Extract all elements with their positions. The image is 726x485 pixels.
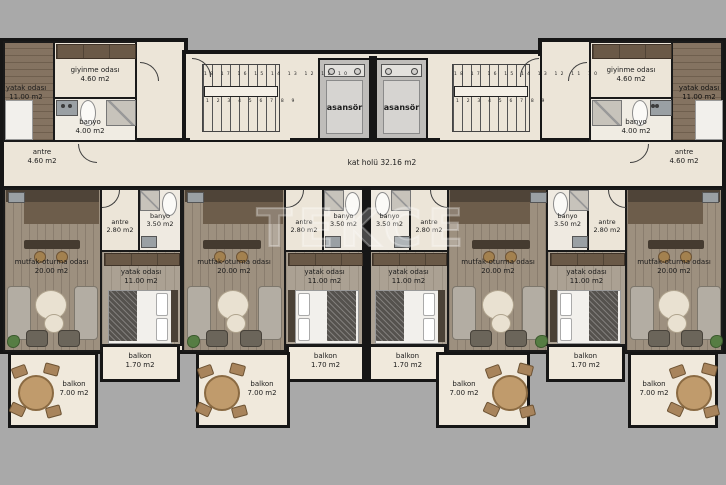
- pillow: [423, 293, 435, 316]
- top-right-entry-label: antre 4.60 m2: [648, 148, 720, 166]
- unit2-balcony-large-label: balkon 7.00 m2: [240, 380, 284, 398]
- pillow: [560, 293, 572, 316]
- bed: [5, 100, 33, 140]
- pillow: [156, 293, 168, 316]
- bathroom-sink: [141, 236, 157, 248]
- kitchen-cabinets: [450, 202, 530, 224]
- bed-headboard: [171, 290, 178, 342]
- bathroom-sink: [650, 100, 672, 116]
- kitchen-sink: [530, 192, 547, 203]
- bed-blanket: [589, 291, 618, 341]
- shower: [569, 190, 589, 211]
- wardrobe: [372, 253, 447, 266]
- shower: [324, 190, 344, 211]
- unit4-living-label: mutfak-oturma odası 20.00 m2: [627, 258, 721, 276]
- floor-plan: yatak odası 11.00 m2 giyinme odası 4.60 …: [0, 0, 726, 485]
- balcony-chair: [519, 404, 536, 419]
- bathroom-sink: [572, 236, 588, 248]
- kitchen-cabinets: [628, 202, 703, 224]
- unit2-balcony-small-label: balkon 1.70 m2: [288, 352, 363, 370]
- armchair: [648, 330, 670, 347]
- unit3-balcony-large-label: balkon 7.00 m2: [442, 380, 486, 398]
- unit1-living-label: mutfak-oturma odası 20.00 m2: [4, 258, 99, 276]
- unit1-balcony-large-label: balkon 7.00 m2: [52, 380, 96, 398]
- unit4-bath-label: banyo 3.50 m2: [546, 212, 589, 229]
- unit4-balcony-large-label: balkon 7.00 m2: [632, 380, 676, 398]
- wardrobe: [56, 44, 136, 59]
- bed-headboard: [550, 290, 557, 342]
- unit3-living-label: mutfak-oturma odası 20.00 m2: [449, 258, 547, 276]
- bed-headboard: [438, 290, 445, 342]
- elevator-divider-wall: [369, 56, 377, 142]
- top-left-bath-label: banyo 4.00 m2: [53, 118, 127, 136]
- top-right-bedroom-label: yatak odası 11.00 m2: [673, 84, 725, 102]
- kitchen-island: [472, 240, 530, 249]
- kitchen-island: [24, 240, 80, 249]
- shower: [140, 190, 160, 211]
- hall-label: kat holü 32.16 m2: [322, 158, 442, 168]
- bed-blanket: [109, 291, 137, 341]
- top-right-dressing-label: giyinme odası 4.60 m2: [589, 66, 673, 84]
- kitchen-island: [648, 240, 704, 249]
- top-left-entry-label: antre 4.60 m2: [6, 148, 78, 166]
- stair-handrail: [454, 86, 528, 97]
- unit3-balcony-small-label: balkon 1.70 m2: [370, 352, 445, 370]
- shower: [391, 190, 411, 211]
- unit2-entry-label: antre 2.80 m2: [284, 218, 324, 235]
- armchair: [26, 330, 48, 347]
- top-right-bath-label: banyo 4.00 m2: [599, 118, 673, 136]
- armchair: [58, 330, 80, 347]
- top-left-bedroom-label: yatak odası 11.00 m2: [0, 84, 52, 102]
- elevator-right: asansör: [375, 58, 428, 140]
- unit1-bedroom-label: yatak odası 11.00 m2: [102, 268, 180, 286]
- wardrobe: [104, 253, 180, 266]
- armchair: [470, 330, 492, 347]
- unit3-bedroom-label: yatak odası 11.00 m2: [370, 268, 447, 286]
- armchair: [681, 330, 703, 347]
- unit1-balcony-small-label: balkon 1.70 m2: [102, 352, 178, 370]
- elevator-left: asansör: [318, 58, 371, 140]
- unit1-entry-label: antre 2.80 m2: [100, 218, 140, 235]
- kitchen-cabinets: [203, 202, 283, 224]
- bathroom-sink: [325, 236, 341, 248]
- bathroom-sink: [56, 100, 78, 116]
- bed-blanket: [327, 291, 356, 341]
- pillow: [423, 318, 435, 341]
- pillow: [156, 318, 168, 341]
- bathroom-sink: [394, 236, 410, 248]
- kitchen-cabinets: [24, 202, 99, 224]
- kitchen-sink: [702, 192, 719, 203]
- bed-blanket: [376, 291, 404, 341]
- unit4-balcony-small-label: balkon 1.70 m2: [548, 352, 623, 370]
- elevator-right-label: asansör: [383, 80, 420, 134]
- stair-handrail: [204, 86, 278, 97]
- unit3-entry-label: antre 2.80 m2: [409, 218, 449, 235]
- kitchen-sink: [187, 192, 204, 203]
- armchair: [505, 330, 527, 347]
- elevator-door-rail: [381, 64, 422, 77]
- pillow: [560, 318, 572, 341]
- kitchen-sink: [8, 192, 25, 203]
- stair-numbers-upper: 18 17 16 15 14 13 12 11 10: [204, 72, 350, 77]
- stair-numbers-lower: 1 2 3 4 5 6 7 8 9: [456, 99, 548, 104]
- unit2-bedroom-label: yatak odası 11.00 m2: [286, 268, 363, 286]
- unit4-entry-label: antre 2.80 m2: [587, 218, 627, 235]
- unit2-bath-label: banyo 3.50 m2: [322, 212, 365, 229]
- wardrobe: [592, 44, 672, 59]
- bed: [695, 100, 723, 140]
- armchair: [206, 330, 228, 347]
- stair-numbers-lower: 1 2 3 4 5 6 7 8 9: [206, 99, 298, 104]
- pillow: [298, 293, 310, 316]
- unit1-bath-label: banyo 3.50 m2: [138, 212, 182, 229]
- bed-headboard: [288, 290, 295, 342]
- unit2-living-label: mutfak-oturma odası 20.00 m2: [184, 258, 284, 276]
- unit4-bedroom-label: yatak odası 11.00 m2: [548, 268, 625, 286]
- unit3-bath-label: banyo 3.50 m2: [368, 212, 411, 229]
- wardrobe: [288, 253, 363, 266]
- elevator-left-label: asansör: [326, 80, 363, 134]
- armchair: [240, 330, 262, 347]
- wardrobe: [550, 253, 625, 266]
- kitchen-island: [203, 240, 261, 249]
- pillow: [298, 318, 310, 341]
- top-left-dressing-label: giyinme odası 4.60 m2: [53, 66, 137, 84]
